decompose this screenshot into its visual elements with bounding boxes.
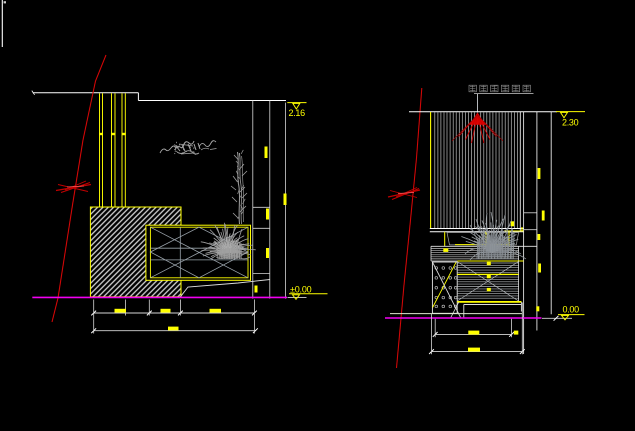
svg-text:0.00: 0.00 [563, 305, 580, 315]
svg-text:±0.00: ±0.00 [290, 285, 312, 295]
svg-text:2.16: 2.16 [289, 108, 306, 118]
svg-text:2.30: 2.30 [562, 118, 579, 128]
